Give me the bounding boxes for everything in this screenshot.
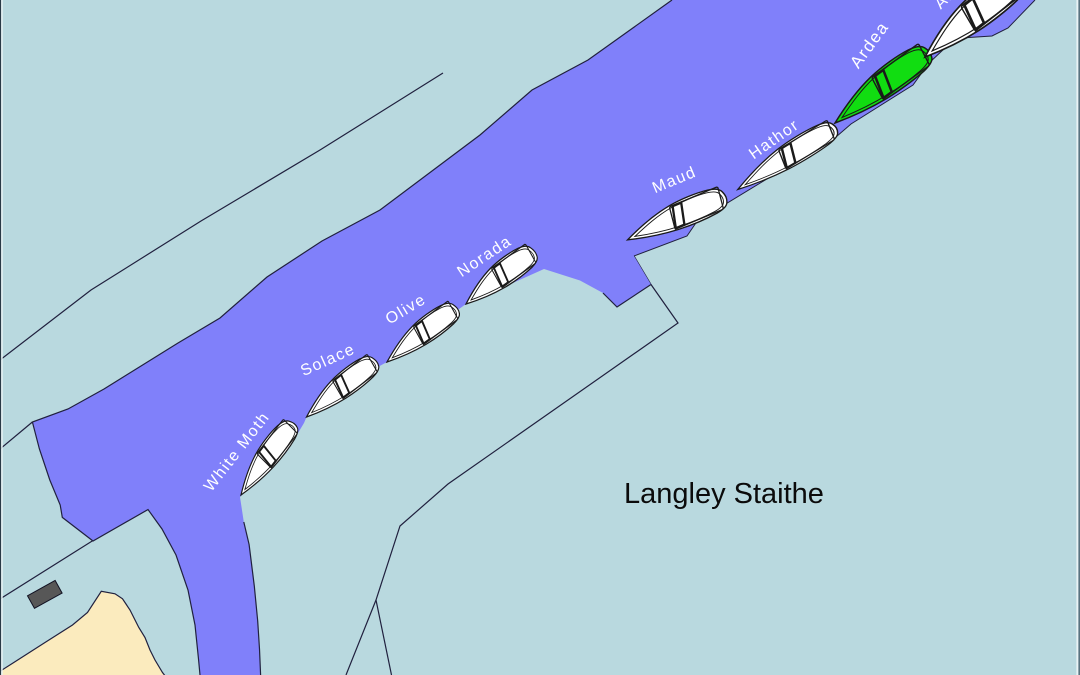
svg-text:Langley Staithe: Langley Staithe	[624, 478, 824, 510]
